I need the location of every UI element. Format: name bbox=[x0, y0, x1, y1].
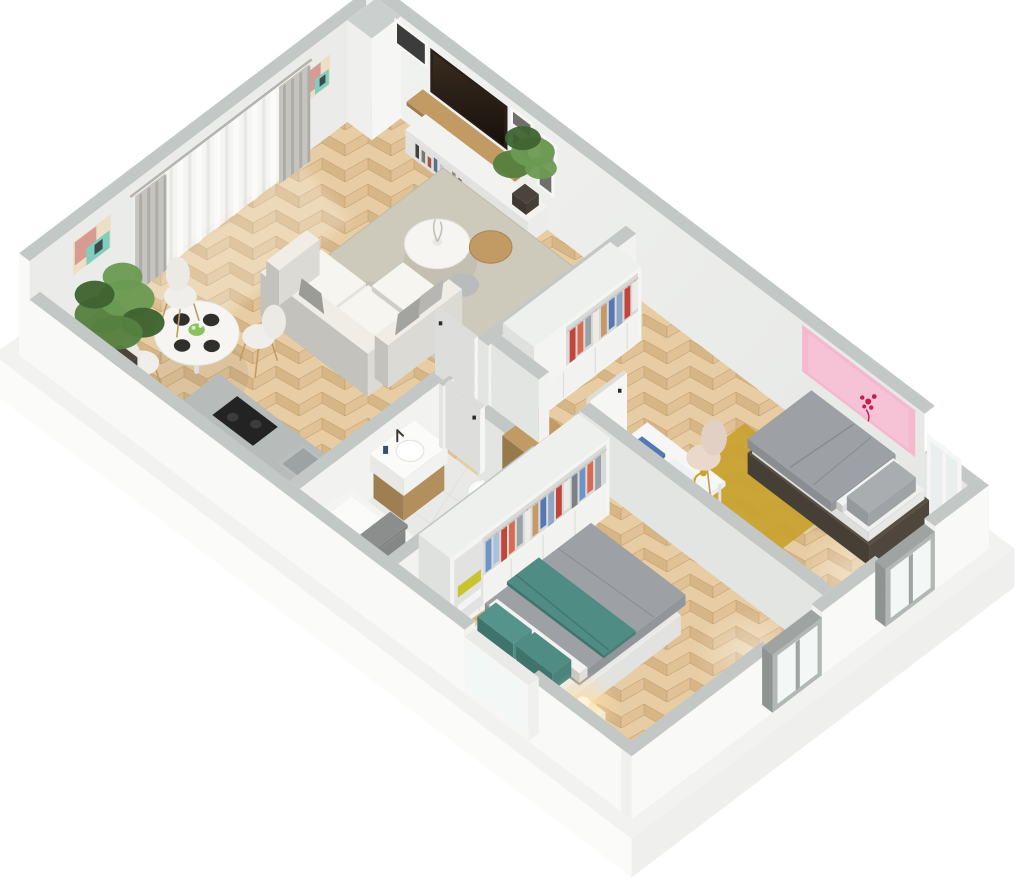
apartment-isometric-scene bbox=[0, 0, 1024, 883]
corner-pillar bbox=[347, 0, 400, 140]
coffee-table bbox=[405, 219, 471, 269]
floor-plan-3d-render bbox=[0, 0, 1024, 883]
